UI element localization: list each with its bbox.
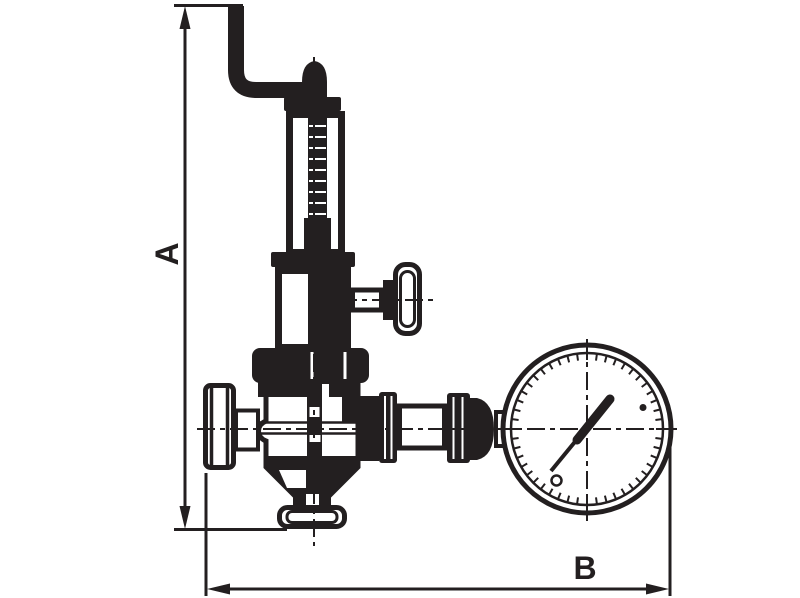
spring-bonnet xyxy=(290,115,342,253)
outlet-flange xyxy=(280,508,345,527)
dimension-a-label: A xyxy=(149,242,185,265)
locknut xyxy=(284,97,341,111)
lever-rod xyxy=(236,6,313,90)
gauge-tick xyxy=(596,354,597,361)
body-top-slit xyxy=(321,384,329,397)
spring-top-plate xyxy=(304,218,331,252)
pressure-reducing-valve-drawing: A B xyxy=(0,0,800,598)
dimension-b-arrow-left xyxy=(207,584,230,595)
adjustment-lever xyxy=(236,6,313,90)
valve-body xyxy=(258,383,358,506)
gauge-needle-hub xyxy=(552,476,562,486)
dimension-b-arrow-right xyxy=(646,584,669,595)
gauge-union-nut-1 xyxy=(379,392,397,463)
gauge-tick xyxy=(577,497,578,504)
gauge-pipe-1 xyxy=(400,406,445,448)
dimension-a-arrow-down xyxy=(180,506,191,529)
technical-drawing-page: A B xyxy=(0,0,800,598)
outlet-neck-slit xyxy=(306,494,319,506)
body-flange xyxy=(252,348,369,383)
gauge-tick xyxy=(655,438,662,439)
dimension-a-arrow-up xyxy=(180,6,191,29)
body-right-block xyxy=(342,397,358,423)
dimension-b-label: B xyxy=(573,550,596,586)
gauge-tick xyxy=(596,497,597,504)
gauge-fitting xyxy=(358,392,508,463)
gauge-set-pointer-dot xyxy=(640,404,647,411)
gauge-tick xyxy=(577,354,578,361)
gauge-tick xyxy=(655,419,662,420)
chamber-right-wall xyxy=(320,271,346,347)
gauge-tick xyxy=(512,438,519,439)
inlet-union-nut xyxy=(206,386,234,468)
body-bottom-band xyxy=(266,456,358,468)
gauge-tick xyxy=(512,419,519,420)
inlet-union xyxy=(206,386,259,468)
